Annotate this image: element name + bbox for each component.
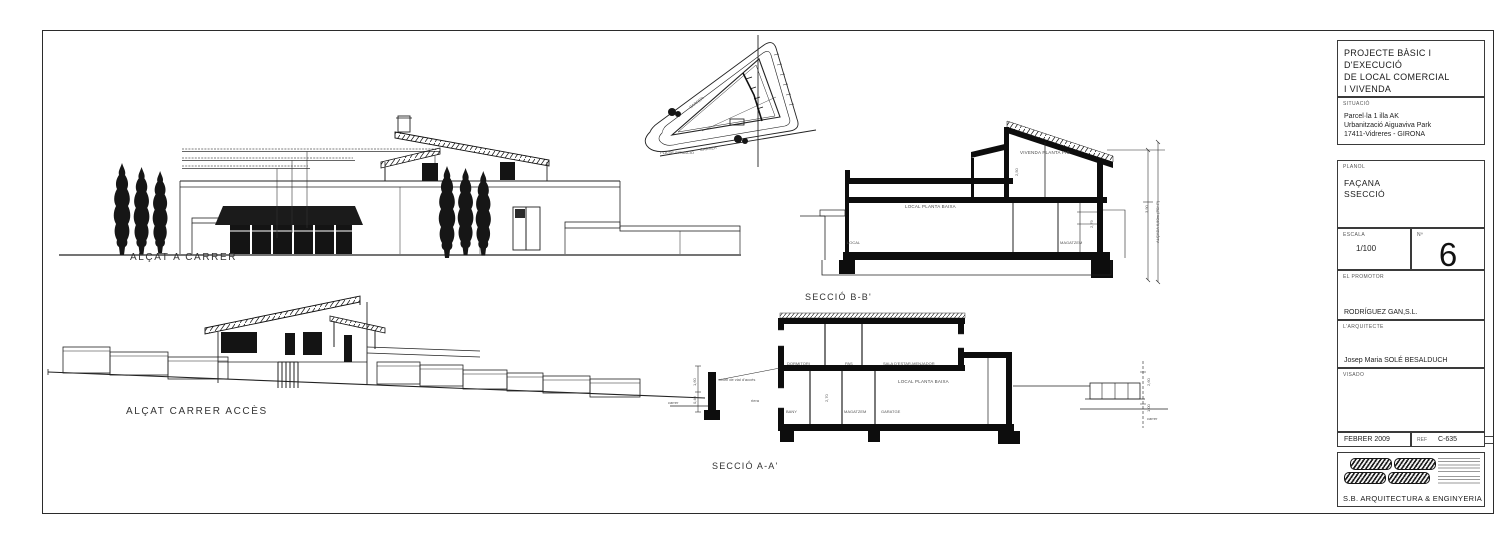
glass-door	[513, 207, 540, 250]
escala-label: ESCALA	[1338, 229, 1410, 238]
section-aa-room-dormitori: DORMITORI	[787, 361, 810, 366]
section-bb-room-local: LOCAL PLANTA BAIXA	[905, 204, 956, 209]
ref-extension-line	[1485, 436, 1493, 437]
section-bb-dim-390: 3,90	[1144, 205, 1149, 213]
logo-contact-text-2	[1438, 476, 1480, 485]
ref-label: REF	[1417, 437, 1427, 443]
section-bb-room-magatzem: MAGATZEM	[1060, 240, 1082, 245]
ref-box: REF C-635	[1411, 432, 1485, 447]
arquitecte-box: L'ARQUITECTE Josep Maria SOLÉ BESALDUCH	[1337, 320, 1485, 368]
sb-logo	[1344, 458, 1436, 484]
logo-box: S.B. ARQUITECTURA & ENGINYERIA	[1337, 452, 1485, 507]
section-aa-note-carrer-right: carrer	[1147, 416, 1157, 421]
arquitecte-value: Josep Maria SOLÉ BESALDUCH	[1344, 357, 1447, 364]
section-aa-dim-100: 1,00	[1146, 404, 1151, 412]
planol-label: PLANOL	[1338, 161, 1484, 170]
section-bb-drawing	[795, 112, 1170, 302]
street-level-marker	[670, 366, 780, 420]
section-aa-label: SECCIÓ A-A'	[712, 461, 778, 471]
site-plan-label: PLA DE SITUACIÓ	[660, 150, 694, 155]
project-title: PROJECTE BÀSIC I D'EXECUCIÓ DE LOCAL COM…	[1338, 41, 1484, 95]
promotor-value: RODRÍGUEZ GAN,S.L.	[1344, 309, 1418, 316]
stepped-walls-left	[63, 347, 228, 379]
escala-value: 1/100	[1338, 238, 1410, 253]
section-bb-dim-279: 2,79	[1089, 220, 1094, 228]
sheet-number-value: 6	[1412, 238, 1484, 272]
section-aa-dim-260: 2,60	[1146, 378, 1151, 386]
ref-value: C-635	[1438, 436, 1457, 443]
section-aa-room-local: LOCAL PLANTA BAIXA	[898, 379, 949, 384]
visado-label: VISADO	[1338, 369, 1484, 378]
elevation-street-label: ALÇAT A CARRER	[130, 252, 237, 263]
planol-value: FAÇANA SSECCIÓ	[1338, 170, 1484, 200]
logo-contact-text	[1438, 458, 1480, 472]
promotor-box: EL PROMOTOR RODRÍGUEZ GAN,S.L.	[1337, 270, 1485, 320]
gate	[278, 362, 298, 388]
section-aa-room-garatge: GARATGE	[881, 409, 900, 414]
situacio-label: SITUACIÓ	[1338, 98, 1484, 107]
escala-box: ESCALA 1/100	[1337, 228, 1411, 270]
section-aa-room-magatzem: MAGATZEM	[844, 409, 866, 414]
section-aa-dim-160: 1,60	[692, 378, 697, 386]
firm-name: S.B. ARQUITECTURA & ENGINYERIA	[1343, 494, 1482, 503]
section-bb-room-local-small: LOCAL	[847, 240, 860, 245]
section-aa-note-nivell: nivell de vial d'accés	[719, 377, 755, 382]
ref-extension-line-2	[1485, 443, 1493, 444]
section-aa-room-bany: BANY	[786, 409, 797, 414]
planol-box: PLANOL FAÇANA SSECCIÓ	[1337, 160, 1485, 228]
right-walls	[565, 222, 740, 254]
section-bb-label: SECCIÓ B-B'	[805, 292, 872, 302]
visado-box: VISADO	[1337, 368, 1485, 432]
section-aa-room-sala: SALA D'ESTAR-MENJADOR	[883, 361, 935, 366]
date-value: FEBRER 2009	[1338, 433, 1410, 443]
sheet-number-box: Nº 6	[1411, 228, 1485, 270]
section-aa-note-carrer: carrer	[668, 400, 678, 405]
project-title-box: PROJECTE BÀSIC I D'EXECUCIÓ DE LOCAL COM…	[1337, 40, 1485, 97]
section-bb-room-vivenda: VIVENDA PLANTA PIS	[1020, 150, 1070, 155]
section-bb-dim-altura: ALÇADA 6,50m (PB+P)	[1155, 201, 1160, 243]
situacio-value: Parcel·la 1 illa AK Urbanització Aiguavi…	[1338, 107, 1484, 139]
drawing-sheet: ALÇAT A CARRER	[0, 0, 1500, 533]
section-aa-dim-040: 0,40	[692, 396, 697, 404]
plan-trees	[668, 108, 748, 144]
promotor-label: EL PROMOTOR	[1338, 271, 1484, 280]
elevation-access-label: ALÇAT CARRER ACCÈS	[126, 406, 268, 417]
section-aa-dim-270: 2,70	[824, 394, 829, 402]
date-box: FEBRER 2009	[1337, 432, 1411, 447]
section-aa-note-riera: riera	[751, 398, 759, 403]
arquitecte-label: L'ARQUITECTE	[1338, 321, 1484, 330]
storefront	[215, 206, 363, 254]
section-aa-room-pas: PAS	[845, 361, 853, 366]
section-bb-dim-250: 2,50	[1014, 168, 1019, 176]
porch	[330, 316, 385, 349]
situacio-box: SITUACIÓ Parcel·la 1 illa AK Urbanitzaci…	[1337, 97, 1485, 145]
